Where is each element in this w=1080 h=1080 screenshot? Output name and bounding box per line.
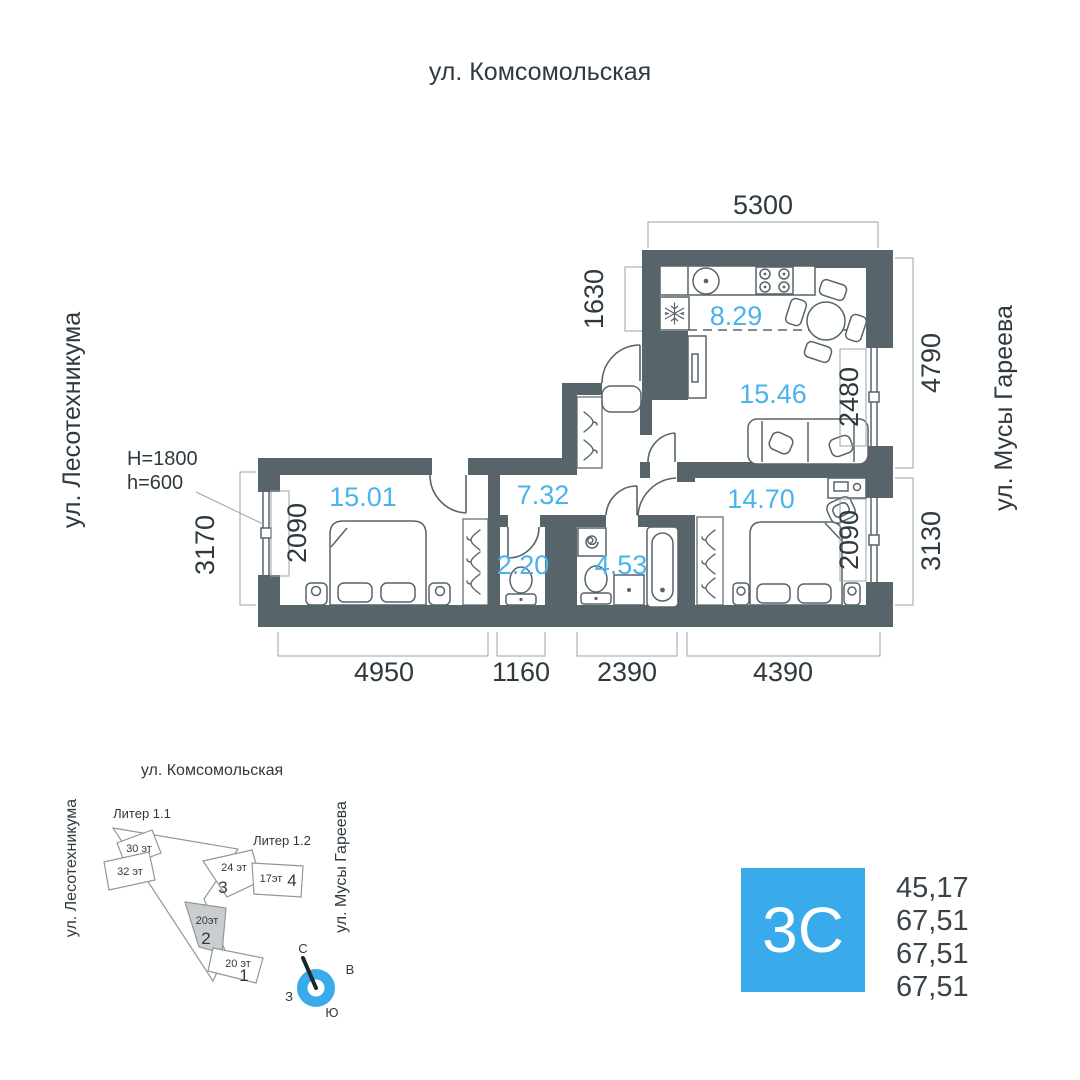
building-2-floors: 20эт [196,915,219,927]
compass-north: С [298,941,307,956]
minimap-liter-2: Литер 1.2 [253,833,311,848]
site-plan: ул. Комсомольская ул. Лесотехникума ул. … [63,762,354,1020]
fridge-snowflake-icon [660,297,689,330]
nightstand-right-bedroom1 [429,583,450,605]
dim-niche: 1630 [579,269,609,329]
building-2-number: 2 [201,929,210,948]
window-bedroom2 [869,498,879,582]
tv-stand [688,336,706,398]
dim-bedroom1-window: 2090 [282,503,312,563]
bed-bedroom1 [330,521,426,605]
dim-bottom-bedroom2: 4390 [753,657,813,687]
building-30-floors: 30 эт [126,843,152,855]
area-bathroom: 4.53 [595,550,648,580]
bathtub [647,527,678,607]
building-4-number: 4 [287,871,296,890]
compass-south: Ю [325,1005,338,1020]
area-bedroom1: 15.01 [329,482,397,512]
compass-east: В [346,962,355,977]
minimap-street-right: ул. Мусы Гареева [333,801,350,933]
dim-bottom-bedroom1: 4950 [354,657,414,687]
dim-left-outer: 3170 [190,515,220,575]
nightstand-left-bedroom1 [306,583,327,605]
wardrobe-bedroom2 [697,517,723,605]
area-kitchen: 8.29 [710,301,763,331]
dim-bottom-bathroom: 2390 [597,657,657,687]
bedroom1-door [430,475,466,513]
living-passage-door [648,433,675,462]
apartment-badge: 3С 45,17 67,51 67,51 67,51 [741,868,969,1003]
building-3-number: 3 [218,878,227,897]
window-note-1: H=1800 [127,448,198,470]
nightstand-right-bedroom2 [844,583,860,605]
badge-area-2: 67,51 [896,905,969,937]
minimap-liter-1: Литер 1.1 [113,806,171,821]
badge-area-3: 67,51 [896,938,969,970]
bathroom-door [606,486,637,515]
area-wc: 2.20 [497,550,550,580]
minimap-street-top: ул. Комсомольская [141,762,283,779]
dim-right-lower: 3130 [916,511,946,571]
building-4-floors: 17эт [260,873,283,885]
compass: С В З Ю [285,941,354,1020]
street-label-left: ул. Лесотехникума [58,312,86,528]
bedroom2-door [638,478,676,516]
area-hall: 7.32 [517,480,570,510]
compass-west: З [285,989,293,1004]
building-1-number: 1 [239,966,248,985]
dim-bottom-wc: 1160 [492,657,550,687]
wardrobe-bedroom1 [463,519,488,605]
floor-plan: 5300 1630 4790 2480 3130 2090 3170 2090 … [127,190,946,687]
badge-area-1: 45,17 [896,872,969,904]
dim-living-window: 2480 [834,367,864,427]
dim-bedroom2-window: 2090 [834,510,864,570]
badge-area-4: 67,51 [896,971,969,1003]
building-32-floors: 32 эт [117,866,143,878]
desk-bedroom2 [828,478,866,498]
window-living [869,348,879,446]
dim-top: 5300 [733,190,793,220]
bed-bedroom2 [750,522,842,605]
entry-wardrobe [577,397,602,468]
nightstand-left-bedroom2 [733,583,749,605]
window-note-2: h=600 [127,472,183,494]
street-label-top: ул. Комсомольская [429,58,651,86]
entry-bench [602,386,641,412]
badge-type-label: 3С [762,894,844,966]
area-living: 15.46 [739,379,807,409]
street-label-right: ул. Мусы Гареева [990,305,1018,511]
minimap-buildings: 30 эт 32 эт 24 эт 3 17эт 4 20эт 2 20 эт … [104,828,303,985]
stove-icon [756,267,793,294]
dim-right-upper: 4790 [916,333,946,393]
floorplan-canvas: ул. Комсомольская ул. Лесотехникума ул. … [0,0,1080,1080]
building-3-floors: 24 эт [221,862,247,874]
minimap-street-left: ул. Лесотехникума [63,799,80,937]
entry-door [602,345,640,383]
sink-icon [693,268,719,294]
window-bedroom1 [261,492,271,575]
area-bedroom2: 14.70 [727,484,795,514]
floorplan-page: ул. Комсомольская ул. Лесотехникума ул. … [0,0,1080,1080]
